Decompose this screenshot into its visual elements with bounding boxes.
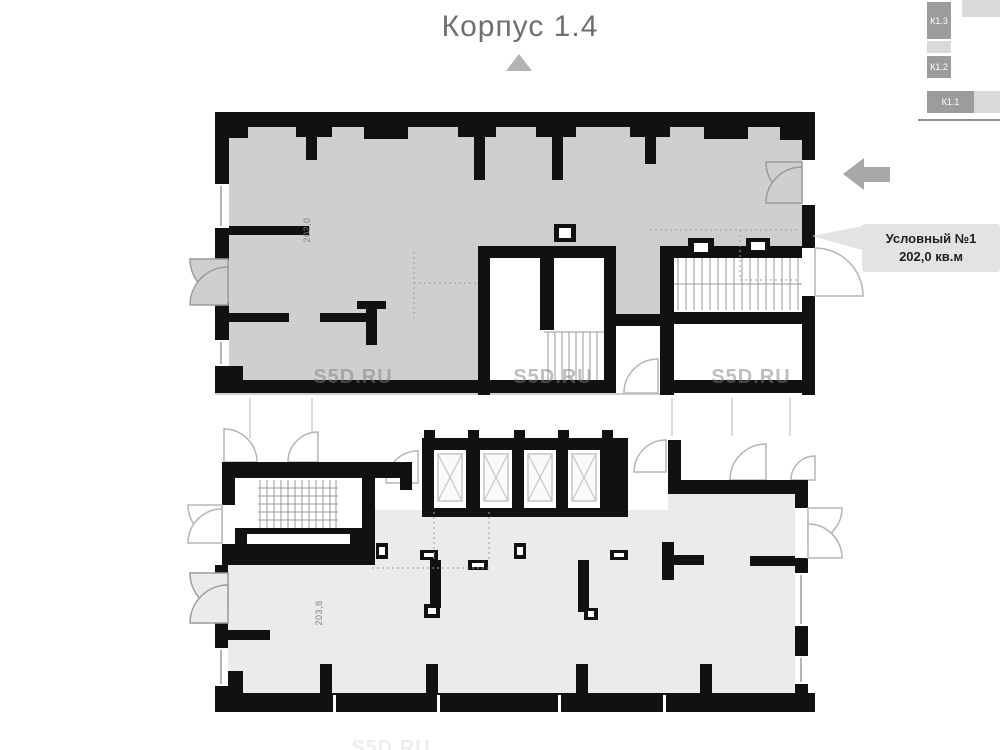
- building-pointer-icon: [506, 54, 532, 71]
- minimap-block-k12[interactable]: К1.2: [927, 56, 951, 78]
- minimap-label-k12: К1.2: [930, 62, 948, 72]
- minimap-block-k11[interactable]: К1.1: [927, 91, 974, 113]
- unit-203-area-label: 203,8: [314, 600, 324, 625]
- upper-building: 202,0: [190, 112, 863, 395]
- unit-202-area-label: 202,0: [302, 217, 312, 242]
- entrance-arrow-icon: [843, 158, 890, 190]
- callout-unit-name: Условный №1: [886, 230, 977, 248]
- watermark: S5D.RU: [498, 366, 608, 389]
- minimap-label-k13: К1.3: [930, 16, 948, 26]
- watermark: S5D.RU: [298, 366, 408, 389]
- unit-callout: Условный №1 202,0 кв.м: [862, 224, 1000, 272]
- elevator-bank: [422, 430, 628, 517]
- minimap-label-k11: К1.1: [942, 97, 960, 107]
- minimap-block-neighbor: [962, 0, 1000, 17]
- building-title: Корпус 1.4: [370, 10, 670, 44]
- minimap: К1.3 К1.2 К1.1: [900, 0, 1000, 124]
- callout-unit-area: 202,0 кв.м: [899, 248, 963, 266]
- watermark: S5D.RU: [696, 366, 806, 389]
- watermark: S5D.RU: [336, 737, 446, 750]
- minimap-block-spacer: [927, 41, 951, 53]
- floorplan-page: 202,0: [0, 0, 1000, 750]
- stair-exit-door-icon: [815, 248, 863, 296]
- minimap-block-k13[interactable]: К1.3: [927, 2, 951, 39]
- callout-pointer-icon: [812, 226, 862, 250]
- minimap-block-k11-ext: [974, 91, 1000, 113]
- minimap-baseline: [918, 119, 1000, 121]
